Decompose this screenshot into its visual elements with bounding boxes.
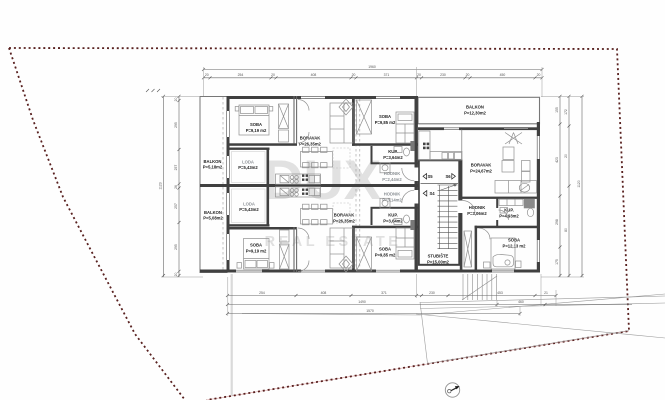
svg-text:20: 20 (205, 73, 209, 77)
svg-text:P=12,30m2: P=12,30m2 (464, 111, 486, 116)
svg-text:SOBA: SOBA (379, 247, 391, 252)
svg-text:254: 254 (259, 291, 265, 295)
svg-text:20: 20 (271, 73, 275, 77)
svg-text:1120: 1120 (577, 180, 581, 187)
svg-text:S4: S4 (429, 191, 435, 196)
svg-text:254: 254 (238, 73, 244, 77)
svg-text:175: 175 (555, 259, 559, 265)
svg-text:298: 298 (555, 219, 559, 225)
svg-text:P=2,44m2: P=2,44m2 (382, 177, 402, 182)
svg-text:80: 80 (564, 228, 568, 232)
svg-text:408: 408 (311, 73, 317, 77)
svg-text:P=5,08m2: P=5,08m2 (203, 215, 223, 220)
svg-text:20: 20 (417, 73, 421, 77)
svg-text:257: 257 (174, 203, 178, 209)
svg-text:21: 21 (544, 291, 548, 295)
svg-text:P=9,19 m2: P=9,19 m2 (246, 248, 267, 253)
svg-text:P=9,85 m2: P=9,85 m2 (375, 253, 396, 258)
svg-text:423: 423 (555, 157, 559, 163)
svg-text:P=4,93m2: P=4,93m2 (499, 214, 519, 219)
svg-text:1490: 1490 (358, 300, 366, 304)
svg-text:P=5,43m2: P=5,43m2 (239, 207, 259, 212)
svg-text:P=3,64m2: P=3,64m2 (383, 219, 403, 224)
svg-text:S5: S5 (427, 174, 433, 179)
svg-text:STUBIŠTE: STUBIŠTE (428, 254, 449, 259)
svg-text:P=12,13 m2: P=12,13 m2 (503, 244, 527, 249)
svg-text:26: 26 (174, 185, 178, 189)
svg-text:SOBA: SOBA (379, 114, 391, 119)
svg-text:257: 257 (174, 165, 178, 171)
svg-text:230: 230 (440, 73, 446, 77)
svg-text:BALKON: BALKON (204, 210, 222, 215)
svg-text:20: 20 (466, 73, 470, 77)
svg-text:20: 20 (537, 73, 541, 77)
svg-text:SOBA: SOBA (250, 122, 262, 127)
svg-text:BALKON: BALKON (466, 105, 484, 110)
svg-text:P=15,00m2: P=15,00m2 (427, 260, 449, 265)
svg-text:1570: 1570 (366, 309, 374, 313)
svg-text:DUX: DUX (263, 148, 381, 211)
svg-text:P=5,18m2: P=5,18m2 (203, 164, 223, 169)
svg-text:BORAVAK: BORAVAK (300, 136, 321, 141)
svg-text:230: 230 (429, 291, 435, 295)
svg-text:BALKON: BALKON (204, 159, 222, 164)
svg-text:20: 20 (174, 98, 178, 102)
svg-text:LODA: LODA (242, 160, 254, 165)
svg-text:20: 20 (352, 73, 356, 77)
svg-text:371: 371 (384, 73, 390, 77)
svg-text:1123: 1123 (159, 182, 163, 189)
svg-text:460: 460 (518, 300, 524, 304)
svg-text:S6: S6 (445, 174, 451, 179)
svg-text:LODA: LODA (243, 202, 255, 207)
svg-text:20: 20 (564, 154, 568, 158)
svg-text:408: 408 (321, 291, 327, 295)
svg-text:P=5,43m2: P=5,43m2 (238, 165, 258, 170)
svg-text:KUP.: KUP. (388, 149, 397, 154)
svg-text:HODNIK: HODNIK (384, 192, 401, 197)
svg-text:KUP.: KUP. (504, 208, 513, 213)
svg-text:P=24,67m2: P=24,67m2 (470, 169, 492, 174)
svg-text:P=9,19 m2: P=9,19 m2 (246, 128, 267, 133)
svg-text:P=9,85 m2: P=9,85 m2 (375, 120, 396, 125)
svg-text:295: 295 (174, 244, 178, 250)
svg-text:295: 295 (174, 122, 178, 128)
svg-text:371: 371 (381, 291, 387, 295)
svg-text:HODNIK: HODNIK (384, 171, 401, 176)
svg-text:20: 20 (174, 273, 178, 277)
svg-text:BORAVAK: BORAVAK (334, 213, 355, 218)
svg-text:453: 453 (497, 291, 503, 295)
svg-text:SOBA: SOBA (250, 243, 262, 248)
svg-text:KUP.: KUP. (388, 213, 397, 218)
svg-text:155: 155 (555, 107, 559, 113)
svg-text:BORAVAK: BORAVAK (471, 163, 492, 168)
svg-text:172: 172 (564, 109, 568, 115)
svg-text:1960: 1960 (368, 65, 376, 69)
svg-text:P=3,64m2: P=3,64m2 (383, 155, 403, 160)
svg-text:HODNIK: HODNIK (469, 205, 486, 210)
svg-text:P=3,06m2: P=3,06m2 (467, 211, 487, 216)
svg-text:450: 450 (500, 73, 506, 77)
